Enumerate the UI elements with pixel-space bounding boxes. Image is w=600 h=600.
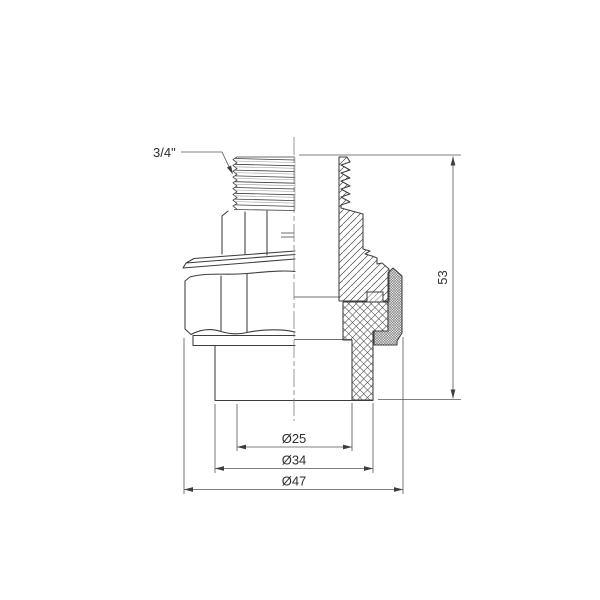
dim-arrowhead-icon <box>237 445 246 450</box>
section-seal <box>367 292 383 302</box>
dim-arrowhead-icon <box>451 390 456 399</box>
thread-size-label: 3/4" <box>153 145 176 160</box>
fitting-drawing: 3/4" Ø25 Ø34 Ø47 53 <box>0 0 600 600</box>
dim-arrowhead-icon <box>394 487 403 492</box>
section-body-socket <box>343 302 388 400</box>
socket-outer-diameter-label: Ø34 <box>282 453 307 468</box>
nut-outer-diameter-label: Ø47 <box>282 474 307 489</box>
insert-hex-neck <box>222 211 267 255</box>
overall-height-label: 53 <box>435 270 450 284</box>
dim-arrowhead-icon <box>184 487 193 492</box>
nut-collar <box>193 336 295 346</box>
union-nut-hex <box>185 271 295 335</box>
bore-diameter-label: Ø25 <box>282 431 307 446</box>
section-view <box>281 157 402 400</box>
technical-drawing-canvas: 3/4" Ø25 Ø34 Ø47 53 <box>0 0 600 600</box>
external-thread <box>233 157 295 211</box>
dim-diameter-25: Ø25 <box>237 403 352 451</box>
section-male-insert <box>339 157 389 301</box>
dim-arrowhead-icon <box>451 157 456 166</box>
dim-arrowhead-icon <box>343 445 352 450</box>
nut-flange-rim <box>183 251 295 268</box>
leader-arrowhead-icon <box>227 166 233 175</box>
dim-arrowhead-icon <box>364 466 373 471</box>
dim-arrowhead-icon <box>215 466 224 471</box>
leader-thread-size: 3/4" <box>153 145 233 175</box>
